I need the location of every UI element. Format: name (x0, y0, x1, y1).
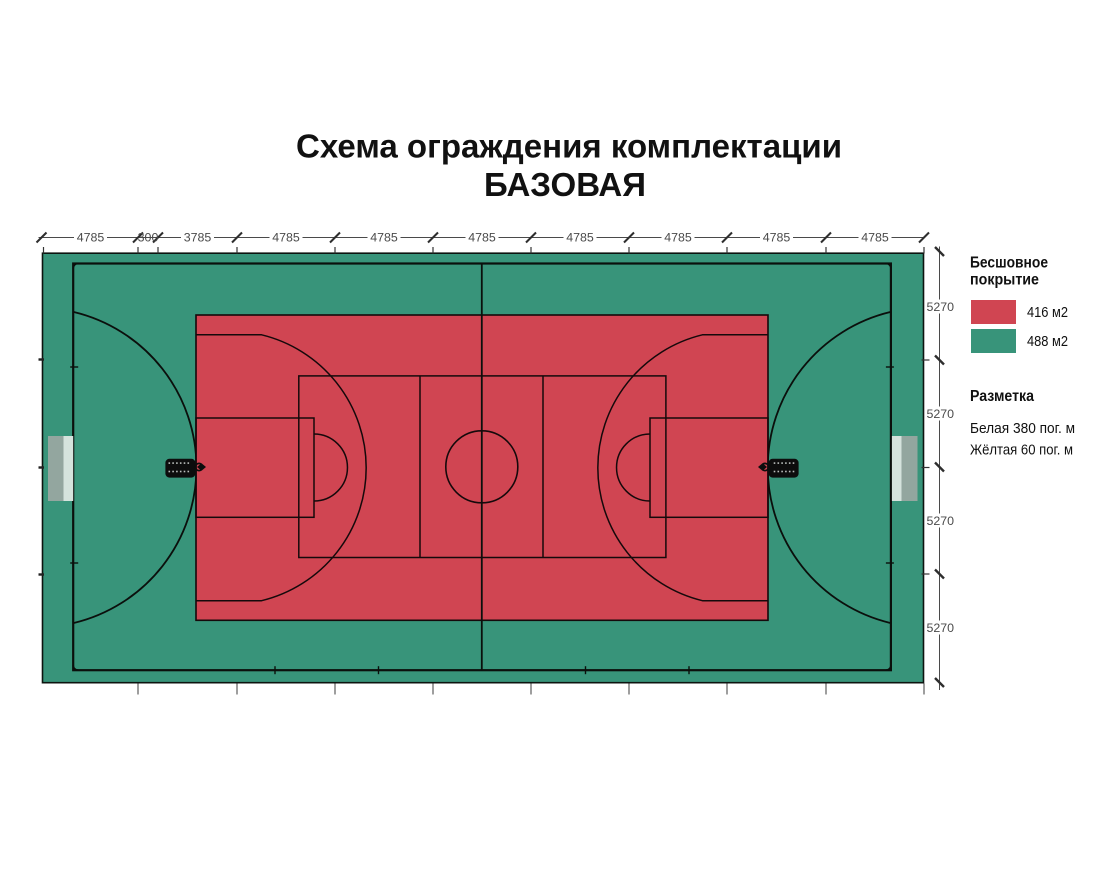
svg-text:4785: 4785 (77, 231, 105, 245)
svg-text:4785: 4785 (861, 231, 889, 245)
svg-text:488 м2: 488 м2 (1027, 334, 1068, 350)
svg-text:покрытие: покрытие (970, 272, 1039, 289)
svg-text:4785: 4785 (272, 231, 300, 245)
svg-text:416 м2: 416 м2 (1027, 305, 1068, 321)
svg-text:4785: 4785 (566, 231, 594, 245)
svg-text:4785: 4785 (468, 231, 496, 245)
svg-text:Схема ограждения комплектации: Схема ограждения комплектации (296, 128, 842, 165)
svg-text:Разметка: Разметка (970, 388, 1034, 405)
svg-text:Жёлтая 60 пог. м: Жёлтая 60 пог. м (970, 443, 1073, 459)
svg-text:4785: 4785 (664, 231, 692, 245)
svg-text:Бесшовное: Бесшовное (970, 255, 1048, 272)
svg-text:5270: 5270 (927, 407, 955, 421)
svg-text:5270: 5270 (927, 300, 955, 314)
svg-text:3785: 3785 (184, 231, 212, 245)
svg-text:4785: 4785 (370, 231, 398, 245)
svg-text:5270: 5270 (927, 621, 955, 635)
svg-text:БАЗОВАЯ: БАЗОВАЯ (484, 166, 646, 203)
svg-text:Белая 380 пог. м: Белая 380 пог. м (970, 421, 1075, 437)
svg-text:4785: 4785 (763, 231, 791, 245)
svg-text:5270: 5270 (927, 514, 955, 528)
svg-text:300: 300 (138, 231, 159, 245)
